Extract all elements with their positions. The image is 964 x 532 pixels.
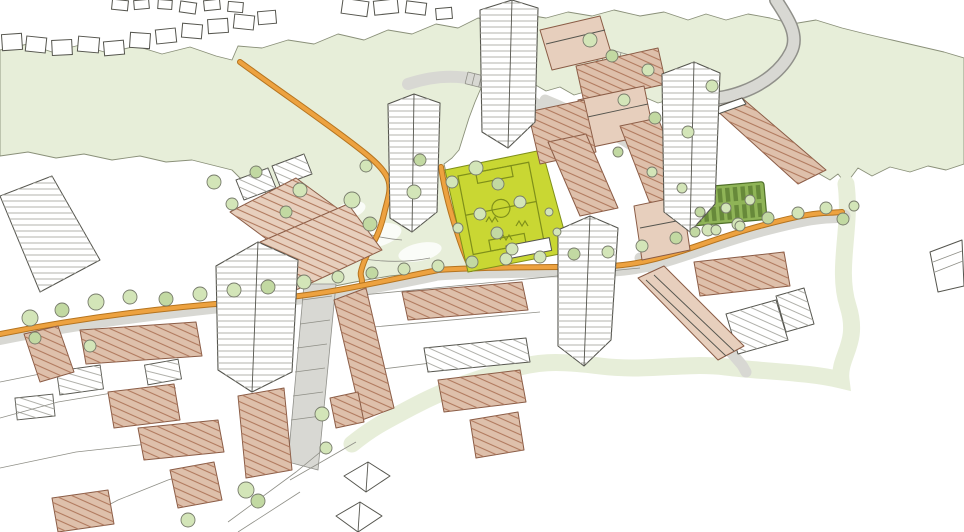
terrace-block-hatch <box>330 392 364 428</box>
terrace-block-hatch <box>694 252 790 296</box>
tree <box>647 167 657 177</box>
tree <box>553 228 561 236</box>
tree <box>88 294 104 310</box>
tree <box>491 227 503 239</box>
existing-house <box>77 36 99 53</box>
existing-house <box>134 0 150 10</box>
tree <box>29 332 41 344</box>
tree <box>649 112 661 124</box>
garage-row-hatch <box>145 359 182 385</box>
tree <box>745 195 755 205</box>
existing-house <box>130 32 151 48</box>
tree <box>534 251 546 263</box>
tree <box>762 212 774 224</box>
tree <box>238 482 254 498</box>
tree <box>226 198 238 210</box>
tree <box>469 161 483 175</box>
tree <box>466 256 478 268</box>
existing-house <box>341 0 369 17</box>
tree <box>251 494 265 508</box>
tree <box>636 240 648 252</box>
tree <box>84 340 96 352</box>
tree <box>332 271 344 283</box>
tree <box>360 160 372 172</box>
tree <box>735 221 745 231</box>
existing-house <box>25 36 46 53</box>
shed <box>336 502 382 532</box>
tree <box>514 196 526 208</box>
tower-block-top <box>480 0 538 148</box>
tree <box>407 185 421 199</box>
existing-house <box>52 39 73 55</box>
existing-house <box>158 0 173 9</box>
tree <box>315 407 329 421</box>
terrace-block-hatch <box>438 370 526 412</box>
terrace-block-hatch <box>470 412 524 458</box>
existing-house <box>1 33 22 50</box>
terrace-block-hatch <box>170 462 222 508</box>
masterplan-canvas <box>0 0 964 532</box>
tree <box>506 243 518 255</box>
tree <box>682 126 694 138</box>
existing-house <box>405 1 426 15</box>
existing-house <box>228 1 244 12</box>
tree <box>545 208 553 216</box>
tree <box>583 33 597 47</box>
tree <box>613 147 623 157</box>
tree <box>568 248 580 260</box>
existing-house <box>112 0 129 11</box>
corner-building-outline <box>930 240 964 292</box>
tree <box>280 206 292 218</box>
terrace-block-hatch <box>138 420 224 460</box>
existing-house <box>155 28 176 44</box>
tree <box>474 208 486 220</box>
tree <box>414 154 426 166</box>
tree <box>181 513 195 527</box>
existing-house <box>179 1 196 14</box>
tree <box>453 223 463 233</box>
tree <box>22 310 38 326</box>
tree <box>193 287 207 301</box>
tree <box>320 442 332 454</box>
tree <box>293 183 307 197</box>
existing-house <box>373 0 398 15</box>
tree <box>123 290 137 304</box>
tree <box>618 94 630 106</box>
garage-row-hatch <box>15 394 55 420</box>
tower-block-west <box>216 242 298 392</box>
existing-house <box>103 40 124 56</box>
existing-slab-block-hatch <box>0 176 100 292</box>
existing-house <box>208 18 229 33</box>
tree <box>227 283 241 297</box>
tree <box>606 50 618 62</box>
existing-house <box>257 10 276 25</box>
tree <box>159 292 173 306</box>
tree <box>711 225 721 235</box>
tree <box>706 80 718 92</box>
masterplan-sketch <box>0 0 964 532</box>
tree <box>398 263 410 275</box>
tree <box>677 183 687 193</box>
tree <box>446 176 458 188</box>
tree <box>366 267 378 279</box>
tree <box>792 207 804 219</box>
existing-house <box>204 0 221 11</box>
tree <box>363 217 377 231</box>
tree <box>250 166 262 178</box>
tree <box>670 232 682 244</box>
tree <box>721 203 731 213</box>
tree <box>642 64 654 76</box>
tree <box>344 192 360 208</box>
tree <box>690 227 700 237</box>
terrace-block-hatch <box>238 388 292 478</box>
tree <box>849 201 859 211</box>
tree <box>820 202 832 214</box>
tree <box>297 275 311 289</box>
tree <box>207 175 221 189</box>
terrace-row-long-hatch <box>548 134 618 216</box>
terrace-block-L-horizontal-hatch <box>402 282 528 320</box>
tree <box>55 303 69 317</box>
existing-house <box>436 7 453 19</box>
tree <box>261 280 275 294</box>
tower-block-central-south <box>558 216 618 366</box>
existing-house <box>233 14 254 30</box>
tree <box>695 207 705 217</box>
tower-block-central-north <box>388 94 440 232</box>
tree <box>602 246 614 258</box>
existing-house <box>181 23 202 39</box>
tree <box>492 178 504 190</box>
tree <box>432 260 444 272</box>
tree <box>837 213 849 225</box>
shed <box>344 462 390 492</box>
shape-hatch <box>558 216 618 366</box>
